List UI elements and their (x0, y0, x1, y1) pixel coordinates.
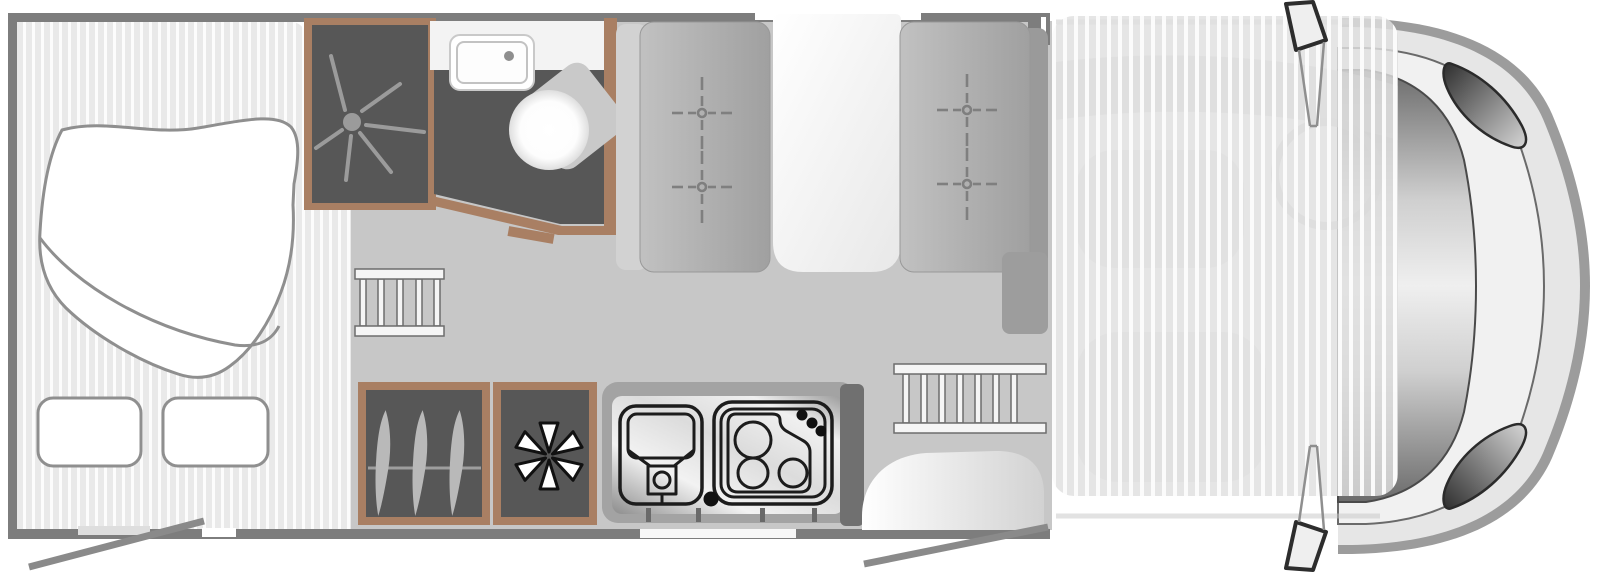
kitchen-leg (646, 508, 651, 522)
window-bedroom (78, 526, 150, 535)
pillow-left (38, 398, 141, 466)
basin-icon (450, 35, 534, 90)
floorplan-canvas (0, 0, 1598, 572)
hob-knob (797, 410, 808, 421)
kitchen-leg (812, 508, 817, 522)
side-cabinet (1002, 252, 1048, 334)
habitation-area (8, 12, 1052, 567)
kitchen-block (602, 382, 864, 526)
hob-knob (816, 426, 827, 437)
entrance (862, 451, 1048, 564)
pillow-right (163, 398, 268, 466)
shower-floor (312, 25, 428, 203)
shower-cubicle (304, 18, 436, 210)
fridge (493, 382, 597, 525)
hob-dot (704, 492, 719, 507)
cab (1052, 2, 1590, 570)
bench-right (900, 22, 1030, 272)
window-kitchen (640, 529, 796, 538)
window-bedroom-2 (202, 528, 236, 537)
hob-knob (807, 418, 818, 429)
drop-down-bed-overlay (1052, 16, 1398, 496)
washroom (430, 18, 631, 244)
double-bed (38, 119, 298, 466)
dinette-table (773, 14, 901, 272)
motorhome-floorplan (0, 0, 1598, 572)
tap-dot (504, 51, 514, 61)
bench-left (640, 22, 770, 272)
kitchen-leg (760, 508, 765, 522)
wardrobe (358, 382, 490, 525)
kitchen-end-panel (840, 384, 864, 526)
kitchen-leg (696, 508, 701, 522)
